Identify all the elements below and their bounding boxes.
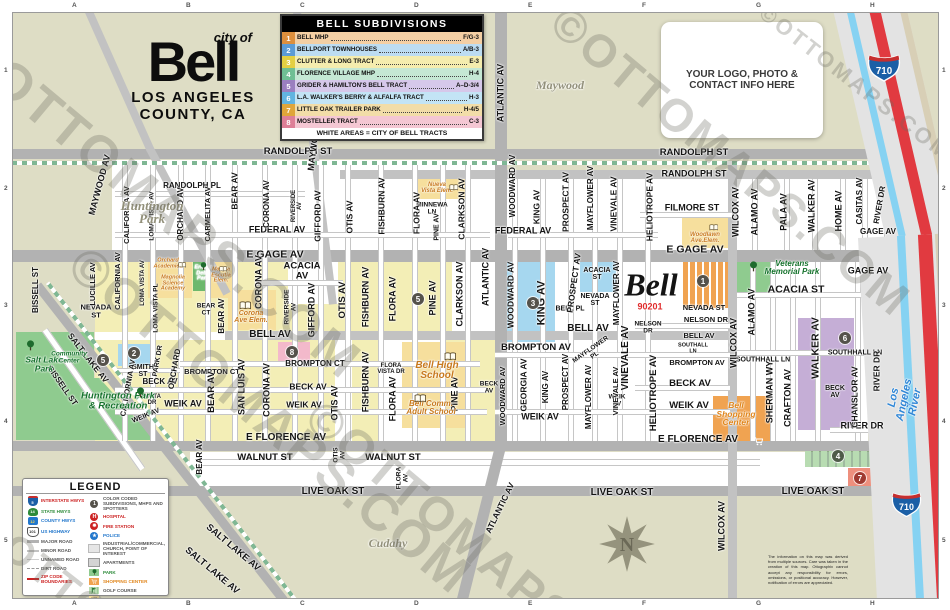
legend-item-minor-road: MINOR ROAD	[26, 547, 88, 555]
label-prospect-av: PROSPECT AV	[562, 354, 570, 410]
grid-letter-top-d: D	[414, 2, 419, 9]
label-lucille-av: LUCILLE AV	[89, 262, 97, 305]
label-otis-av: OTIS AV	[330, 385, 339, 420]
label-mayflower-av: MAYFLOWER AV	[587, 166, 595, 230]
legend-item-label: DIRT ROAD	[41, 566, 67, 571]
label-california-av: CALIFORNIA AV	[114, 252, 122, 310]
subdivision-grid-ref: A/B-3	[463, 44, 482, 56]
sw-apt-icon	[88, 558, 101, 567]
subdivision-grid-ref: H-4/5	[464, 104, 482, 116]
cart-icon	[753, 433, 764, 451]
label-heliotrope-av: HELIOTROPE AV	[646, 173, 655, 241]
label-bell-av: BELL AV	[567, 324, 608, 334]
label-southall-ln: SOUTHALL LN	[678, 343, 708, 354]
label-bell-av: BELL AV	[249, 330, 290, 340]
legend-item-label: COUNTY HWYS	[41, 518, 75, 523]
subdivision-row-6: 6 L.A. WALKER'S BERRY & ALFALFA TRACT H-…	[282, 92, 482, 104]
logo-placeholder-box: YOUR LOGO, PHOTO & CONTACT INFO HERE	[661, 22, 823, 138]
legend-item-shopping-center: SHOPPING CENTER	[88, 577, 165, 585]
sh-u-icon: 101	[26, 527, 39, 537]
label-vinevale-av: VINEVALE AV	[621, 326, 631, 391]
grid-number-left-5: 5	[4, 537, 8, 544]
label-corona-av: CORONA AV	[262, 363, 271, 417]
label-casitas-av: CASITAS AV	[856, 178, 864, 225]
label-corona-av: CORONA AV	[263, 180, 271, 228]
svg-text:710: 710	[899, 501, 914, 511]
label-brompton-av: BROMPTON AV	[669, 359, 724, 367]
legend-item-label: US HIGHWAY	[41, 529, 70, 534]
subdivision-badge-1: 1	[697, 275, 709, 287]
legend-right-column: 1COLOR CODED SUBDIVISIONS, MHPS AND SPOT…	[88, 496, 165, 603]
subdivision-grid-ref: A–D-3/4	[456, 80, 482, 92]
ln-unnamed-icon	[26, 559, 39, 560]
label-bear-av: BEAR AV	[196, 439, 204, 474]
label-weik-av: WEIK AV	[164, 399, 202, 408]
legend-item-hospital: HHOSPITAL	[88, 513, 165, 521]
grid-number-left-1: 1	[4, 67, 8, 74]
label-veterans-memorial-park: Veterans Memorial Park	[765, 260, 820, 276]
hospital-icon: H	[88, 513, 101, 521]
subdivision-badge-7: 7	[854, 472, 866, 484]
sw-park-icon	[88, 569, 101, 576]
label-live-oak-st: LIVE OAK ST	[782, 487, 845, 497]
grid-letter-bottom-f: F	[642, 600, 646, 607]
sh-s-icon: 14	[26, 508, 39, 516]
grid-letter-bottom-a: A	[72, 600, 77, 607]
label-pine-av: PINE AV	[433, 213, 440, 240]
sw-ind-icon	[88, 544, 101, 553]
subdivision-badge-5: 5	[97, 354, 109, 366]
label-e-gage-av: E GAGE AV	[666, 245, 723, 256]
disclaimer-text: The information on this map was derived …	[768, 554, 848, 585]
label-acacia-st: ACACIA ST	[583, 267, 610, 281]
label-gage-av: GAGE AV	[860, 228, 896, 236]
subdivision-row-4: 4 FLORENCE VILLAGE MHP H-4	[282, 68, 482, 80]
grid-letter-bottom-g: G	[756, 600, 761, 607]
grid-letter-bottom-c: C	[300, 600, 305, 607]
subdivision-name: LITTLE OAK TRAILER PARK	[295, 104, 381, 116]
subdivisions-header: BELL SUBDIVISIONS	[282, 16, 482, 32]
label-gifford-av: GIFFORD AV	[307, 283, 316, 338]
legend-left-column: 5INTERSTATE HWYS14STATE HWYS12COUNTY HWY…	[26, 496, 88, 603]
label-loma-vista-av: LOMA VISTA AV	[140, 260, 146, 305]
subdivision-badge-2: 2	[128, 347, 140, 359]
svg-text:710: 710	[876, 66, 893, 77]
leader-dots	[379, 44, 461, 53]
subdivision-badge-6: 6	[839, 332, 851, 344]
label-wilcox-av: WILCOX AV	[731, 187, 740, 237]
subdivision-number: 2	[282, 44, 295, 56]
leader-dots	[383, 104, 462, 113]
label-flora-av: FLORA AV	[413, 192, 422, 234]
label-mayflower-av: MAYFLOWER AV	[613, 261, 621, 325]
label-alamo-av: ALAMO AV	[750, 189, 759, 236]
subdivision-row-1: 1 BELL MHP F/G-3	[282, 32, 482, 44]
label-bell: Bell	[624, 269, 677, 302]
legend-item-label: MINOR ROAD	[41, 548, 71, 553]
compass-letter: N	[620, 534, 634, 556]
leader-dots	[426, 92, 467, 101]
label-heliotrope-av: HELIOTROPE AV	[649, 355, 659, 432]
subdivision-number: 8	[282, 116, 295, 128]
label-fishburn-av: FISHBURN AV	[378, 177, 387, 234]
ln-dirt-icon	[26, 568, 39, 569]
subdivision-number: 7	[282, 104, 295, 116]
subdivision-badge-3: 3	[527, 297, 539, 309]
legend-item-color-coded-subdivisions-mhps-and-spotters: 1COLOR CODED SUBDIVISIONS, MHPS AND SPOT…	[88, 496, 165, 511]
label-crafton-av: CRAFTON AV	[783, 369, 792, 427]
label-nelson-dr: NELSON DR	[684, 316, 728, 324]
label-home-av: HOME AV	[834, 190, 843, 231]
label-cudahy: Cudahy	[369, 537, 408, 549]
label-flora-av: FLORA AV	[396, 467, 409, 489]
label-carmelita-av: CARMELITA AV	[204, 187, 212, 242]
label-flora-av: FLORA AV	[388, 277, 397, 322]
label-fishburn-av: FISHBURN AV	[361, 267, 370, 328]
legend-item-fire-station: ✹FIRE STATION	[88, 522, 165, 530]
legend-box: LEGEND 5INTERSTATE HWYS14STATE HWYS12COU…	[22, 478, 169, 596]
label-king-av: KING AV	[533, 190, 542, 224]
leader-dots	[409, 80, 454, 89]
label-woodward-av: WOODWARD AV	[507, 262, 516, 329]
grid-number-right-4: 4	[942, 418, 946, 425]
railroad	[12, 161, 938, 165]
legend-item-label: SHOPPING CENTER	[103, 579, 147, 584]
legend-item-zip-code-boundaries: ZIP CODE BOUNDARIES	[26, 574, 88, 584]
sh-i-icon: 5	[26, 496, 39, 506]
label-acacia-av: ACACIA AV	[284, 261, 321, 280]
label-walnut-st: WALNUT ST	[237, 453, 292, 463]
label-e-florence-av: E FLORENCE AV	[246, 433, 326, 443]
tree-icon	[200, 258, 207, 276]
label-gage-av: GAGE AV	[848, 266, 889, 275]
label-southhall-ln: SOUTHHALL LN	[736, 356, 790, 363]
subdivision-grid-ref: C-3	[469, 116, 482, 128]
book-icon	[709, 218, 719, 236]
subdivision-name: FLORENCE VILLAGE MHP	[295, 68, 375, 80]
label-loma-vista-pl: LOMA VISTA PL	[154, 283, 161, 332]
bell-city-map: { "title": {"small": "city of", "big": "…	[0, 0, 950, 610]
label-randolph-st: RANDOLPH ST	[662, 169, 727, 178]
subdivision-grid-ref: E-3	[469, 56, 482, 68]
book-icon	[219, 259, 227, 277]
interstate-710-shield-icon: 710	[867, 53, 901, 87]
label-otis-av: OTIS AV	[333, 447, 346, 462]
legend-item-state-hwys: 14STATE HWYS	[26, 508, 88, 516]
legend-item-label: COLOR CODED SUBDIVISIONS, MHPS AND SPOTT…	[103, 496, 165, 511]
label-bear-ct: BEAR CT	[197, 303, 215, 316]
legend-item-label: ZIP CODE BOUNDARIES	[41, 574, 88, 584]
label-vinevale-av: VINEVALE AV	[610, 176, 619, 231]
legend-item-label: MAJOR ROAD	[41, 539, 72, 544]
label-huntington-park: Huntington Park	[121, 199, 184, 226]
label-90201: 90201	[637, 302, 662, 311]
label-woodward-av: WOODWARD AV	[509, 155, 517, 218]
grid-number-right-5: 5	[942, 537, 946, 544]
book-icon	[414, 390, 427, 408]
label-beck-av: BECK AV	[480, 381, 498, 394]
label-clarkson-av: CLARKSON AV	[458, 178, 467, 239]
legend-item-label: POLICE	[103, 533, 120, 538]
grid-letter-bottom-e: E	[528, 600, 532, 607]
ln-major-icon	[26, 540, 39, 543]
legend-item-label: PARK	[103, 570, 116, 575]
police-icon: ★	[88, 532, 101, 540]
label-nevada-st: NEVADA ST	[580, 293, 609, 307]
leader-dots	[331, 32, 462, 41]
title-bell: Bell	[108, 39, 278, 85]
label-mayflower-av: MAYFLOWER AV	[585, 365, 593, 429]
label-beck-av: BECK AV	[289, 383, 326, 392]
leader-dots	[360, 116, 467, 125]
legend-title: LEGEND	[26, 481, 165, 494]
label-federal-av: FEDERAL AV	[249, 225, 305, 234]
title-county-line2: COUNTY, CA	[108, 106, 278, 123]
legend-item-label: FIRE STATION	[103, 524, 134, 529]
grid-letter-top-e: E	[528, 2, 532, 9]
bell-subdivisions-box: BELL SUBDIVISIONS 1 BELL MHP F/G-32 BELL…	[280, 14, 484, 141]
label-nevada-st: NEVADA ST	[683, 304, 726, 312]
subdivision-grid-ref: F/G-3	[463, 32, 482, 44]
leader-dots	[377, 68, 467, 77]
subdivision-name: BELLPORT TOWNHOUSES	[295, 44, 377, 56]
subdivision-grid-ref: H-3	[469, 92, 482, 104]
label-otis-av: OTIS AV	[338, 282, 348, 319]
label-river-dr: RIVER DR	[840, 421, 883, 430]
label-bell-shopping-center: Bell Shopping Center	[716, 401, 755, 427]
subdivision-name: CLUTTER & LONG TRACT	[295, 56, 374, 68]
label-live-oak-st: LIVE OAK ST	[302, 487, 365, 497]
tree-icon	[136, 385, 145, 403]
subdivision-number: 1	[282, 32, 295, 44]
legend-item-golf-course: GOLF COURSE	[88, 586, 165, 594]
road	[12, 441, 938, 451]
grid-number-right-3: 3	[942, 302, 946, 309]
label-otis-av: OTIS AV	[346, 200, 355, 233]
subdivision-badge-4: 4	[832, 450, 844, 462]
legend-item-label: INDUSTRIAL/COMMERCIAL, CHURCH, POINT OF …	[103, 541, 165, 556]
subdivision-row-8: 8 MOSTELLER TRACT C-3	[282, 116, 482, 128]
label-prospect-av: PROSPECT AV	[562, 172, 571, 232]
label-gifford-av: GIFFORD AV	[314, 190, 323, 241]
label-pine-av: PINE AV	[428, 280, 437, 315]
leader-dots	[376, 56, 467, 65]
subdivision-name: MOSTELLER TRACT	[295, 116, 358, 128]
subdivision-row-3: 3 CLUTTER & LONG TRACT E-3	[282, 56, 482, 68]
label-wilcox-av: WILCOX AV	[729, 318, 738, 368]
interstate-710-shield-icon: 710	[891, 491, 922, 522]
label-weik-av: WEIK AV	[286, 401, 321, 410]
grid-number-left-4: 4	[4, 418, 8, 425]
sh-c-icon: 12	[26, 517, 39, 525]
legend-item-label: GOLF COURSE	[103, 588, 137, 593]
label-pala-av: PALA AV	[779, 193, 788, 231]
grid-letter-top-h: H	[870, 2, 875, 9]
label-woodward-av: WOODWARD AV	[499, 367, 507, 426]
label-chanslor-av: CHANSLOR AV	[851, 366, 860, 427]
label-atlantic-av: ATLANTIC AV	[481, 248, 490, 306]
subdivision-name: L.A. WALKER'S BERRY & ALFALFA TRACT	[295, 92, 424, 104]
grid-number-left-3: 3	[4, 302, 8, 309]
legend-item-interstate-hwys: 5INTERSTATE HWYS	[26, 496, 88, 506]
label-walker-av: WALKER AV	[811, 317, 822, 379]
label-e-florence-av: E FLORENCE AV	[658, 435, 738, 445]
label-randolph-st: RANDOLPH ST	[264, 147, 333, 157]
label-clarkson-av: CLARKSON AV	[455, 262, 464, 327]
legend-item-dirt-road: DIRT ROAD	[26, 565, 88, 573]
label-flora-av: FLORA AV	[388, 377, 397, 422]
legend-item-label: HOSPITAL	[103, 514, 126, 519]
sw-golf-icon	[88, 587, 101, 594]
legend-item-us-highway: 101US HIGHWAY	[26, 527, 88, 537]
ln-minor-icon	[26, 550, 39, 552]
label-weik-av: WEIK AV	[669, 401, 709, 411]
book-icon	[444, 348, 457, 366]
label-river-dr: RIVER DR	[873, 351, 882, 392]
legend-item-label: STATE HWYS	[41, 509, 70, 514]
label-sherman-wy: SHERMAN WY	[765, 361, 774, 424]
legend-item-major-road: MAJOR ROAD	[26, 538, 88, 546]
label-atlantic-av: ATLANTIC AV	[496, 64, 505, 122]
grid-number-left-2: 2	[4, 185, 8, 192]
label-king-av: KING AV	[542, 371, 550, 403]
subdivision-name: BELL MHP	[295, 32, 329, 44]
label-san-luis-av: SAN LUIS AV	[237, 359, 246, 415]
label-randolph-st: RANDOLPH ST	[660, 148, 729, 158]
ln-zip-icon	[26, 578, 39, 580]
map-title: city of Bell LOS ANGELES COUNTY, CA	[108, 30, 278, 123]
book-icon	[239, 297, 252, 315]
subdivision-number: 5	[282, 80, 295, 92]
legend-item-label: APARTMENTS	[103, 560, 135, 565]
label-riverside-av: RIVERSIDE AV	[284, 289, 297, 324]
book-icon	[178, 255, 186, 273]
grid-letter-top-c: C	[300, 2, 305, 9]
legend-item-label: INTERSTATE HWYS	[41, 498, 84, 503]
compass-north-icon: N	[598, 512, 656, 576]
label-bell-av: BELL AV	[683, 332, 714, 340]
subdivisions-rows: 1 BELL MHP F/G-32 BELLPORT TOWNHOUSES A/…	[282, 32, 482, 128]
label-live-oak-st: LIVE OAK ST	[591, 488, 654, 498]
label-vinevale-av: VINEVALE AV	[612, 367, 620, 416]
label-beck-av: BECK AV	[825, 385, 845, 399]
label-bissell-st: BISSELL ST	[32, 267, 40, 313]
label-beck-av: BECK AV	[669, 379, 711, 389]
label-wilcox-av: WILCOX AV	[717, 501, 726, 551]
subdivisions-footer: WHITE AREAS = CITY OF BELL TRACTS	[282, 128, 482, 139]
tree-icon	[749, 259, 758, 277]
sw-shop-icon	[88, 578, 101, 585]
badge-icon: 1	[88, 500, 101, 508]
subdivision-row-7: 7 LITTLE OAK TRAILER PARK H-4/5	[282, 104, 482, 116]
book-icon	[449, 178, 459, 196]
subdivision-row-5: 5 GRIDER & HAMILTON'S BELL TRACT A–D-3/4	[282, 80, 482, 92]
label-corona-av: CORONA AV	[254, 255, 263, 309]
label-georgia-av: GEORGIA AV	[520, 358, 529, 411]
title-county-line1: LOS ANGELES	[108, 89, 278, 106]
label-weik-av: WEIK AV	[521, 412, 559, 421]
label-randolph-pl: RANDOLPH PL	[163, 182, 221, 190]
frame-top	[0, 0, 950, 12]
label-fishburn-av: FISHBURN AV	[361, 352, 370, 413]
label-bear-av: BEAR AV	[218, 298, 226, 333]
legend-columns: 5INTERSTATE HWYS14STATE HWYS12COUNTY HWY…	[26, 496, 165, 603]
tree-icon	[26, 338, 35, 356]
subdivision-name: GRIDER & HAMILTON'S BELL TRACT	[295, 80, 407, 92]
label-bear-av: BEAR AV	[207, 371, 217, 413]
label-alamo-av: ALAMO AV	[747, 289, 756, 336]
label-riverside-av: RIVERSIDE AV	[291, 190, 303, 222]
label-federal-av: FEDERAL AV	[495, 226, 551, 235]
label-maywood: Maywood	[536, 79, 584, 91]
label-filmore-st: FILMORE ST	[665, 203, 720, 212]
legend-item-county-hwys: 12COUNTY HWYS	[26, 517, 88, 525]
legend-item-unnamed-road: UNNAMED ROAD	[26, 556, 88, 564]
grid-letter-top-b: B	[186, 2, 191, 9]
subdivision-number: 6	[282, 92, 295, 104]
label-magnolia-science-academy: Magnolia Science Academy	[161, 276, 185, 293]
label-acacia-st: ACACIA ST	[768, 285, 825, 296]
subdivision-number: 4	[282, 68, 295, 80]
label-walker-av: WALKER AV	[807, 180, 816, 233]
subdivision-grid-ref: H-4	[469, 68, 482, 80]
label-flora-vista-dr: FLORA VISTA DR	[377, 363, 404, 375]
label-community-center: Community Center	[51, 351, 87, 364]
frame-bottom	[0, 598, 950, 610]
grid-letter-top-a: A	[72, 2, 77, 9]
grid-letter-bottom-h: H	[870, 600, 875, 607]
subdivision-number: 3	[282, 56, 295, 68]
subdivision-badge-5: 5	[412, 293, 424, 305]
legend-item-park: PARK	[88, 568, 165, 576]
fire-icon: ✹	[88, 522, 101, 530]
legend-item-label: UNNAMED ROAD	[41, 557, 79, 562]
subdivision-badge-8: 8	[286, 346, 298, 358]
legend-item-police: ★POLICE	[88, 532, 165, 540]
label-nelson-dr: NELSON DR	[634, 321, 661, 334]
grid-letter-bottom-d: D	[414, 600, 419, 607]
grid-letter-top-g: G	[756, 2, 761, 9]
grid-letter-top-f: F	[642, 2, 646, 9]
label-brompton-av: BROMPTON AV	[501, 343, 571, 353]
legend-item-industrial-commercial-church-point-of-interest: INDUSTRIAL/COMMERCIAL, CHURCH, POINT OF …	[88, 541, 165, 556]
label-brompton-ct: BROMPTON CT	[285, 360, 344, 368]
subdivision-row-2: 2 BELLPORT TOWNHOUSES A/B-3	[282, 44, 482, 56]
grid-number-right-2: 2	[942, 185, 946, 192]
legend-item-apartments: APARTMENTS	[88, 558, 165, 567]
grid-letter-bottom-b: B	[186, 600, 191, 607]
label-bear-av: BEAR AV	[231, 172, 240, 209]
grid-number-right-1: 1	[942, 67, 946, 74]
label-walnut-st: WALNUT ST	[365, 453, 420, 463]
